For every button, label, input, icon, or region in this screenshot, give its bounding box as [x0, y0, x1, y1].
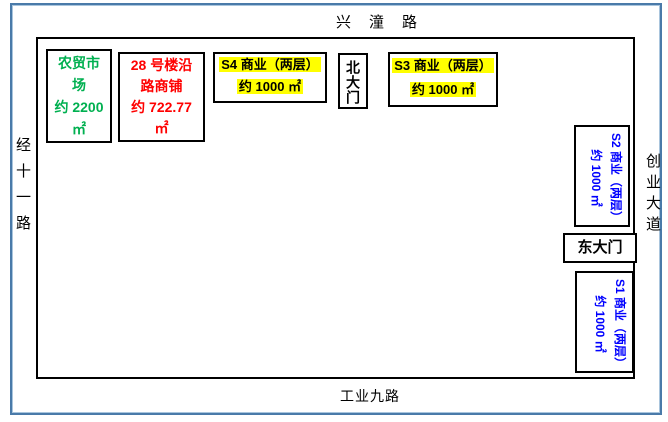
s2-title: S2 商业（两层）	[606, 129, 626, 227]
farmers-market-label: 农贸市 场 约 2200 ㎡	[54, 55, 103, 137]
s4-line1: S4 商业（两层）	[215, 54, 325, 76]
s4-commerce-box: S4 商业（两层） 约 1000 ㎡	[213, 52, 327, 103]
north-gate-label: 北大门	[340, 57, 366, 107]
s1-title: S1 商业（两层）	[610, 275, 630, 373]
s4-line2: 约 1000 ㎡	[215, 76, 325, 98]
north-gate-box: 北大门	[338, 53, 368, 109]
s1-area: 约 1000 ㎡	[590, 275, 610, 373]
s4-area: 约 1000 ㎡	[237, 79, 303, 94]
s4-title: S4 商业（两层）	[219, 57, 321, 72]
east-gate-label: 东大门	[577, 239, 622, 256]
east-gate-box: 东大门	[563, 233, 637, 263]
farmers-market-box: 农贸市 场 约 2200 ㎡	[46, 49, 112, 143]
s3-area: 约 1000 ㎡	[410, 82, 476, 97]
s3-commerce-box: S3 商业（两层） 约 1000 ㎡	[388, 52, 498, 107]
road-label-south: 工业九路	[340, 386, 400, 406]
s3-line2: 约 1000 ㎡	[390, 78, 496, 102]
road-label-west: 经十一路	[12, 137, 33, 241]
road-label-east: 创业大道	[642, 153, 663, 237]
s2-commerce-box: S2 商业（两层） 约 1000 ㎡	[574, 125, 630, 227]
s2-rotated-text: S2 商业（两层） 约 1000 ㎡	[574, 129, 630, 227]
shop-28-box: 28 号楼沿 路商铺 约 722.77 ㎡	[118, 52, 205, 142]
s1-commerce-box: S1 商业（两层） 约 1000 ㎡	[575, 271, 634, 373]
s1-rotated-text: S1 商业（两层） 约 1000 ㎡	[575, 275, 635, 373]
road-label-north: 兴潼路	[336, 11, 435, 32]
site-plan-figure: 兴潼路 经十一路 创业大道 工业九路 农贸市 场 约 2200 ㎡ 28 号楼沿…	[0, 0, 668, 422]
s3-line1: S3 商业（两层）	[390, 54, 496, 78]
shop-28-label: 28 号楼沿 路商铺 约 722.77 ㎡	[131, 57, 192, 136]
s3-title: S3 商业（两层）	[392, 58, 494, 73]
s2-area: 约 1000 ㎡	[586, 129, 606, 227]
